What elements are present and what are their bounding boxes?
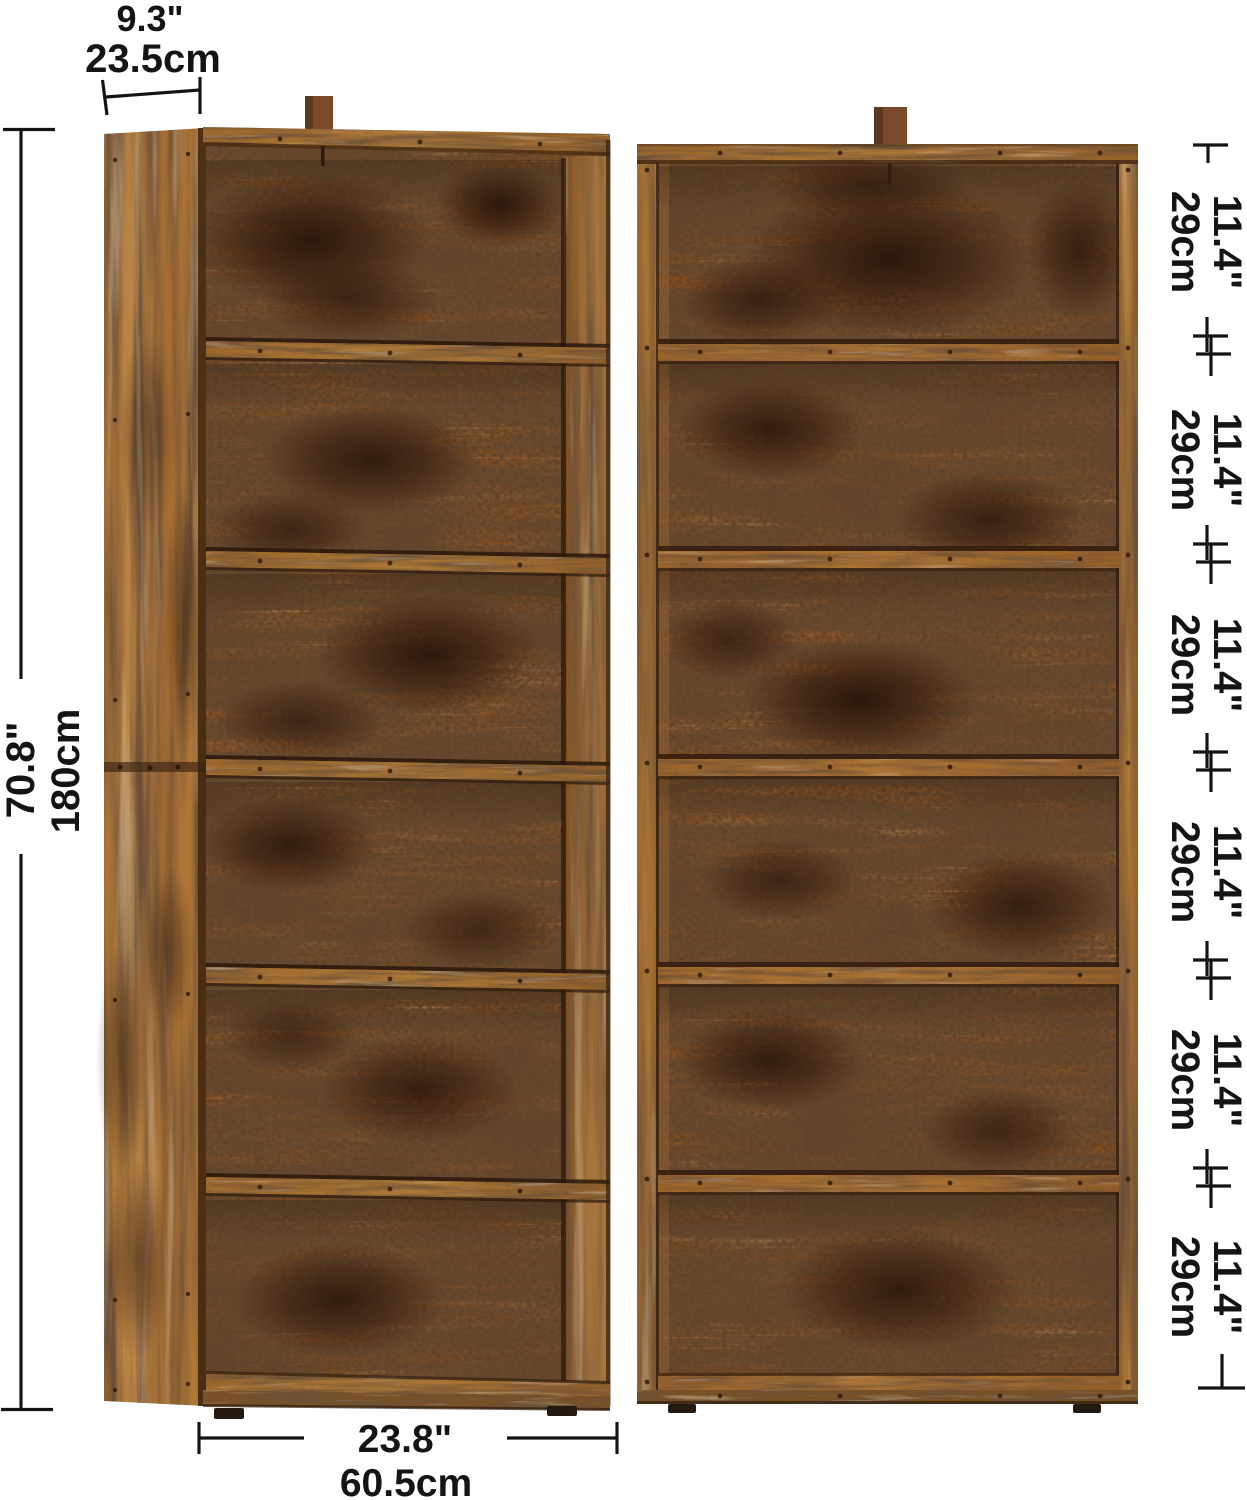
svg-text:29cm: 29cm — [1163, 821, 1207, 923]
svg-text:23.5cm: 23.5cm — [85, 37, 221, 81]
svg-text:11.4": 11.4" — [1205, 825, 1247, 920]
svg-text:11.4": 11.4" — [1205, 413, 1247, 508]
svg-text:23.8": 23.8" — [358, 1418, 452, 1461]
svg-text:70.8": 70.8" — [0, 722, 43, 819]
svg-text:11.4": 11.4" — [1205, 1033, 1247, 1128]
svg-text:29cm: 29cm — [1163, 1029, 1207, 1131]
svg-text:11.4": 11.4" — [1205, 618, 1247, 713]
svg-text:60.5cm: 60.5cm — [340, 1462, 472, 1500]
svg-text:180cm: 180cm — [44, 709, 88, 834]
svg-text:29cm: 29cm — [1163, 1236, 1207, 1338]
svg-text:11.4": 11.4" — [1205, 1240, 1247, 1335]
svg-text:29cm: 29cm — [1163, 191, 1207, 293]
svg-text:9.3": 9.3" — [116, 0, 183, 39]
svg-text:29cm: 29cm — [1163, 409, 1207, 511]
svg-text:29cm: 29cm — [1163, 614, 1207, 716]
svg-text:11.4": 11.4" — [1205, 195, 1247, 290]
